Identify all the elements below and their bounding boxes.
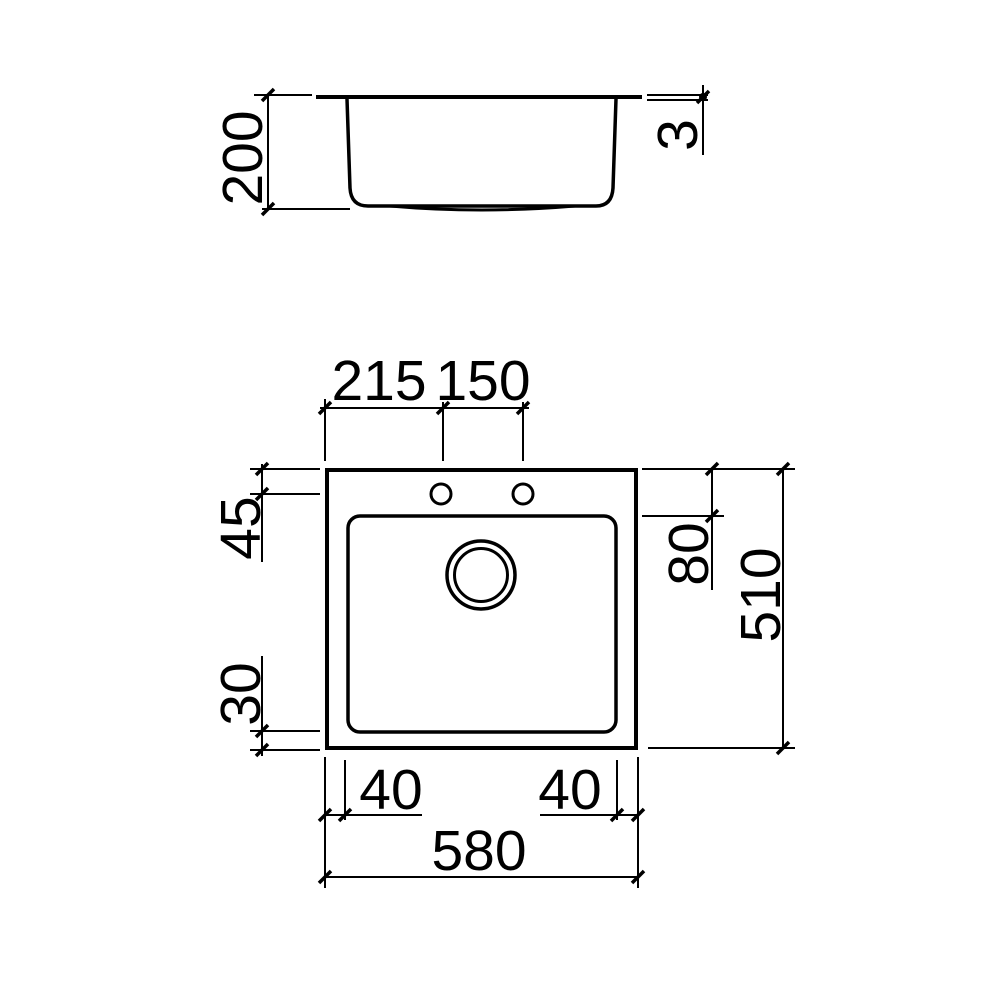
dimension-depth-200: 200 — [211, 89, 350, 215]
dim-label-rim-to-holes: 45 — [209, 496, 273, 559]
tick-dot — [699, 93, 707, 101]
dimension-rim-3: 3 — [646, 85, 710, 155]
dimension-bowl-inset-right-40: 40 — [538, 757, 644, 888]
drawing-root: 200 3 — [209, 85, 795, 888]
dimension-rim-to-holes-45: 45 — [209, 463, 320, 562]
dim-label-depth: 200 — [211, 110, 275, 205]
dim-label-rim-to-bowl: 80 — [657, 522, 721, 585]
faucet-hole-left — [431, 484, 451, 504]
dim-label-overall-depth: 510 — [729, 547, 793, 642]
dimension-overall-depth-510: 510 — [648, 463, 795, 754]
dim-label-bowl-to-edge: 30 — [209, 662, 273, 725]
dimension-hole-positions: 215 150 — [319, 349, 531, 461]
drain-circle-outer — [447, 541, 515, 609]
sink-bowl-profile — [347, 99, 616, 206]
dimension-bowl-inset-left-40: 40 — [319, 757, 423, 888]
dimension-bowl-to-edge-30: 30 — [209, 656, 320, 756]
dim-label-bowl-inset-left: 40 — [359, 758, 422, 822]
drain-circle-inner — [455, 549, 508, 602]
side-view: 200 3 — [211, 85, 710, 215]
drawing-page: 200 3 — [0, 0, 1000, 1000]
sink-technical-drawing: 200 3 — [0, 0, 1000, 1000]
dim-label-holes-offset: 215 — [331, 349, 426, 413]
faucet-hole-right — [513, 484, 533, 504]
dim-label-rim-thickness: 3 — [646, 119, 710, 151]
dim-label-overall-width: 580 — [431, 819, 526, 883]
dimension-overall-width-580: 580 — [319, 819, 644, 883]
top-view: 215 150 45 — [209, 349, 795, 888]
dim-label-holes-spacing: 150 — [435, 349, 530, 413]
dim-label-bowl-inset-right: 40 — [538, 758, 601, 822]
